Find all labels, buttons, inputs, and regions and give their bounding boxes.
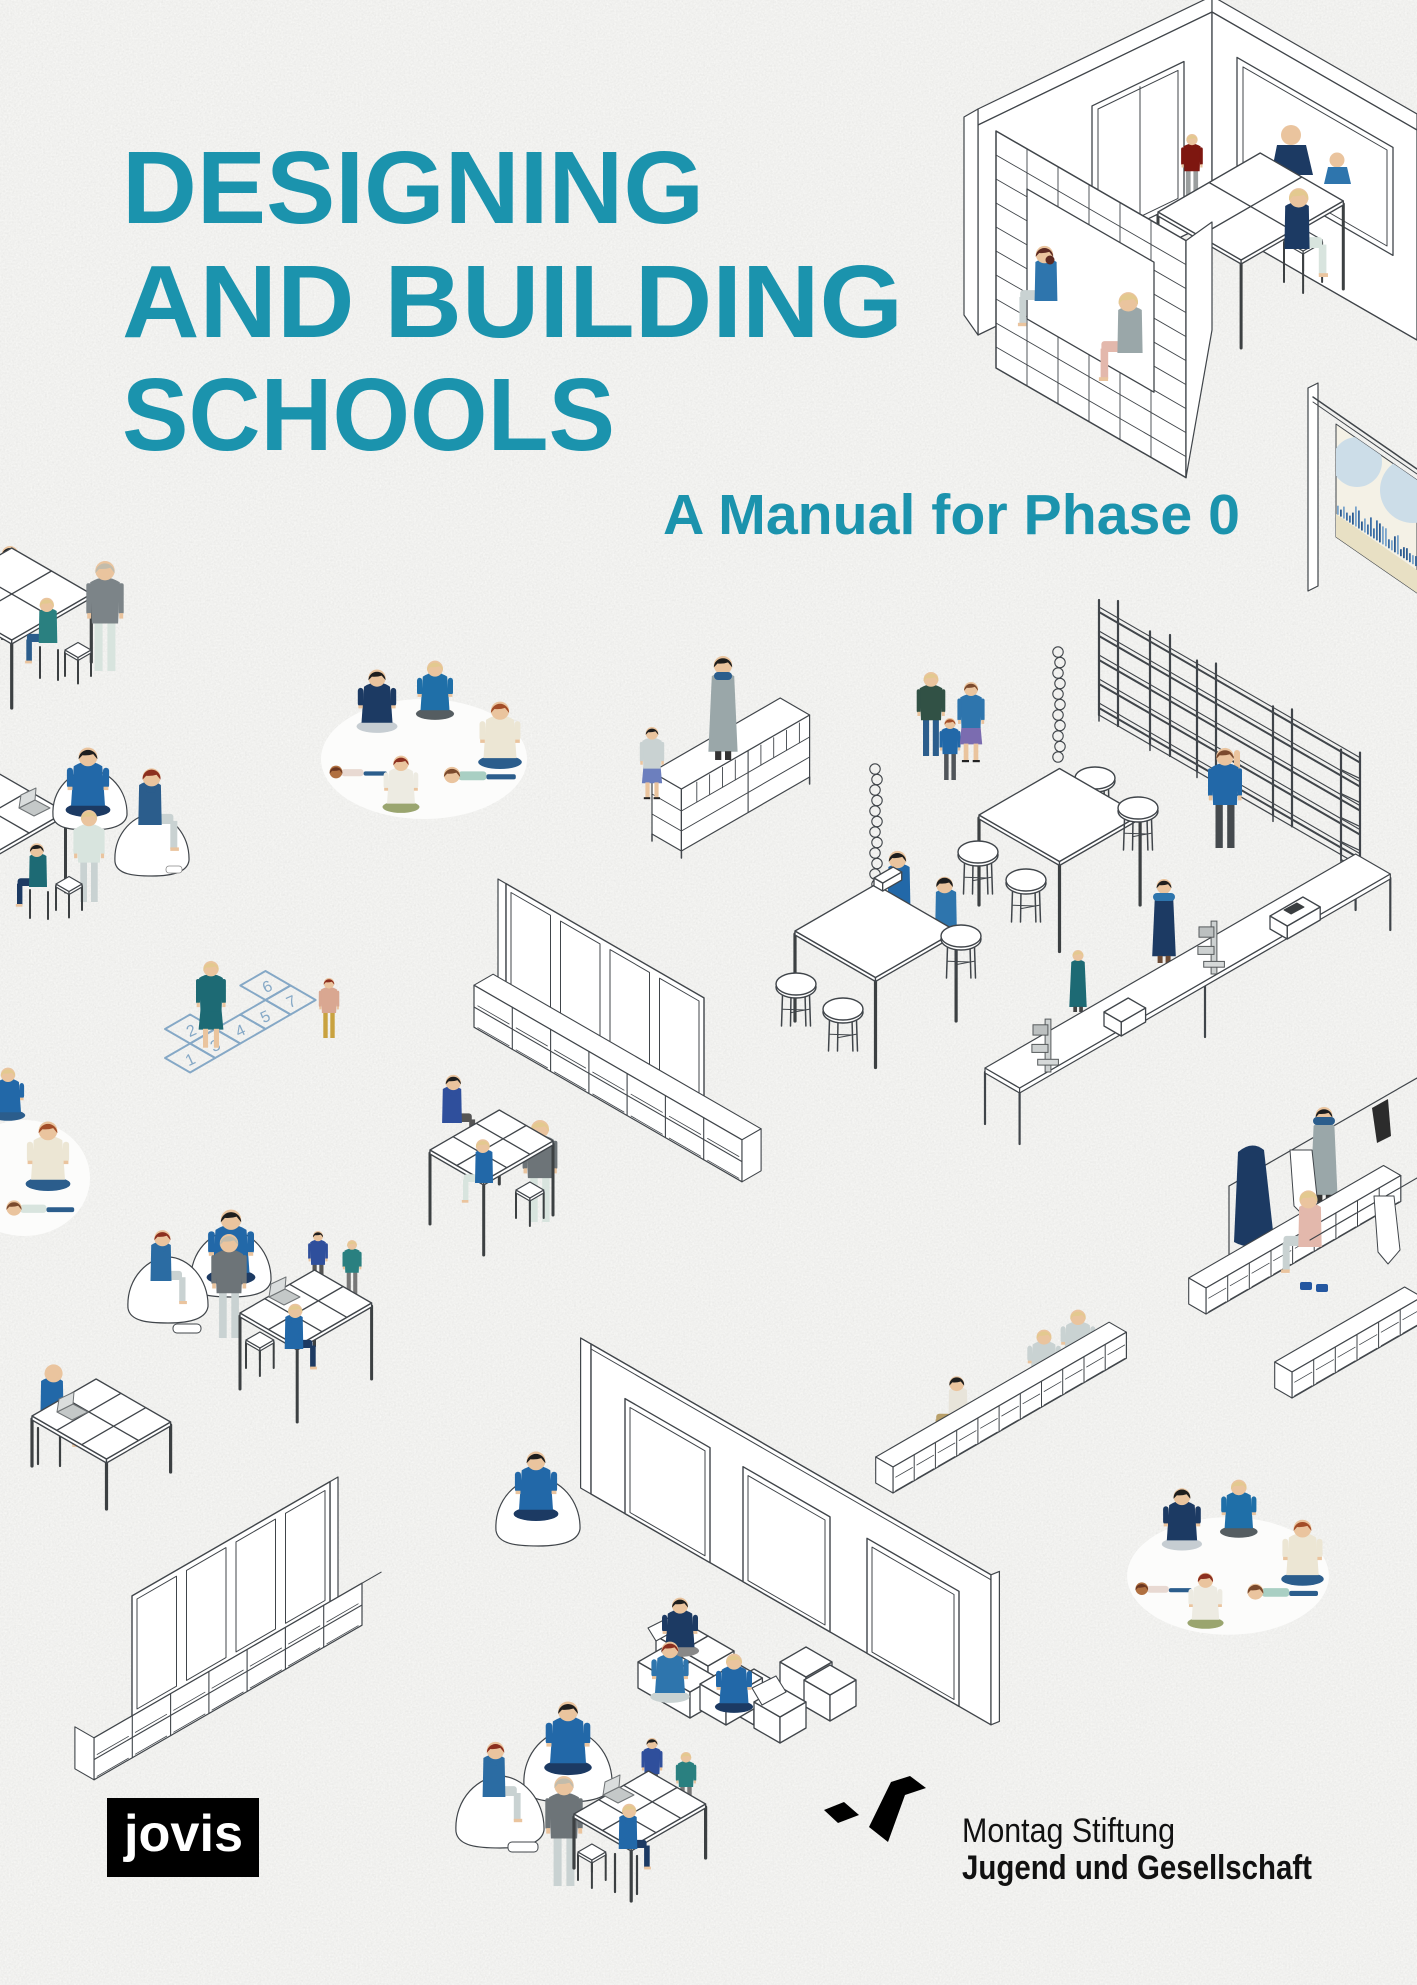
- svg-text:SCHOOLS: SCHOOLS: [122, 357, 615, 472]
- svg-text:Jugend und Gesellschaft: Jugend und Gesellschaft: [962, 1849, 1312, 1887]
- svg-text:DESIGNING: DESIGNING: [122, 130, 704, 245]
- svg-text:A Manual for Phase 0: A Manual for Phase 0: [663, 483, 1240, 547]
- svg-text:AND BUILDING: AND BUILDING: [122, 244, 903, 359]
- svg-text:Montag Stiftung: Montag Stiftung: [962, 1812, 1175, 1850]
- svg-text:jovis: jovis: [123, 1805, 243, 1863]
